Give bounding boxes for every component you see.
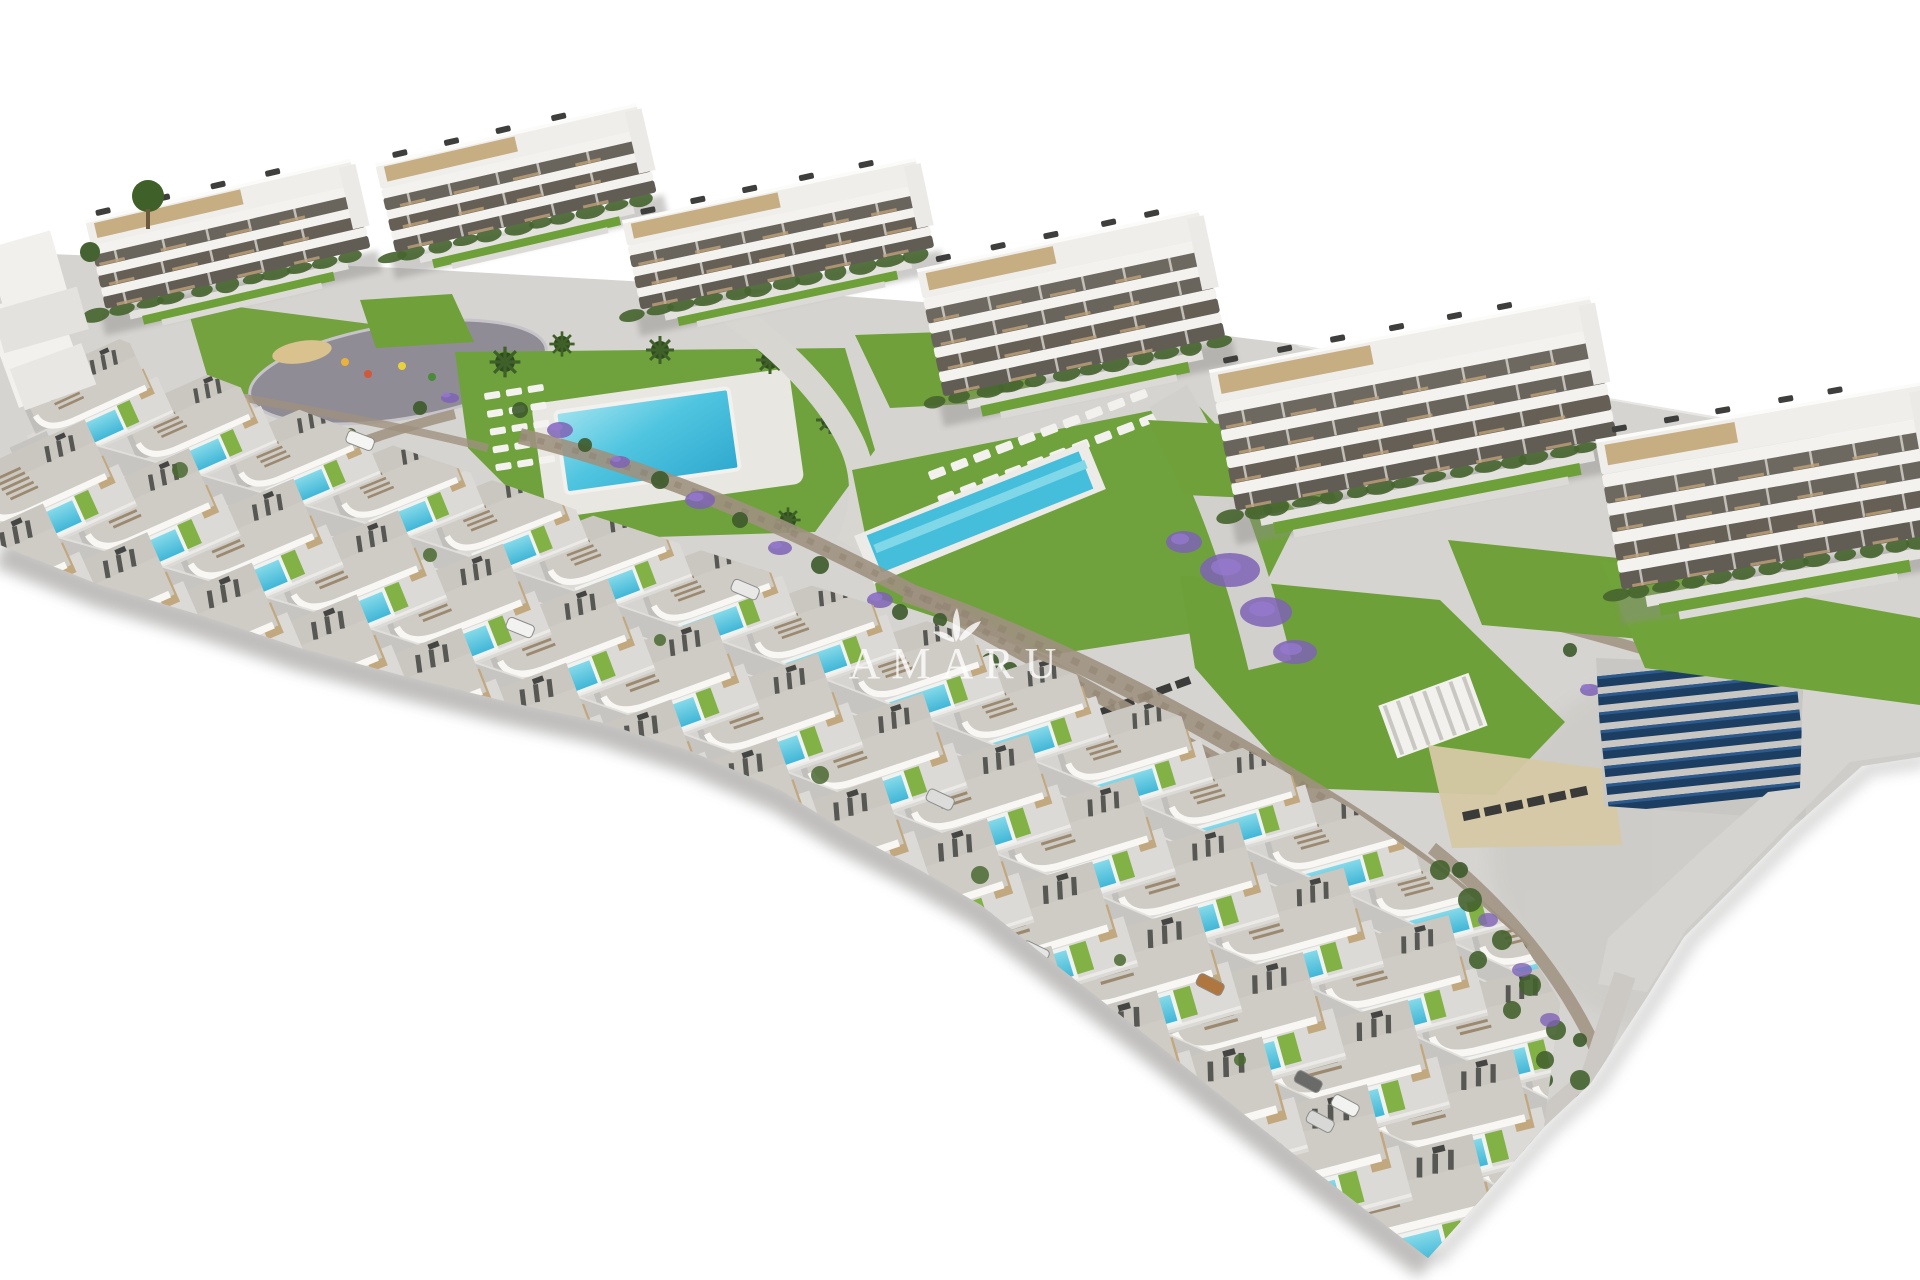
svg-text:AMARU: AMARU bbox=[849, 639, 1068, 688]
